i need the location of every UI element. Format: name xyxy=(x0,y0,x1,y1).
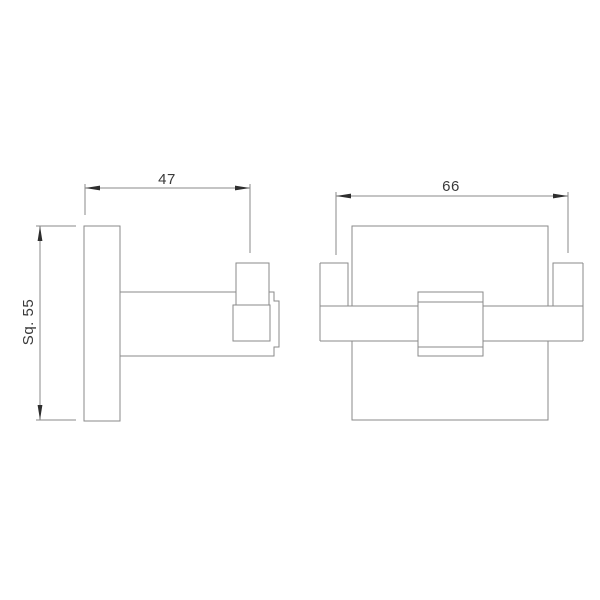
front-back-plate-upper xyxy=(352,226,548,306)
side-view xyxy=(84,226,279,421)
front-left-hook-peg xyxy=(320,263,348,306)
dim-sq55-arrow-bottom-icon xyxy=(38,405,43,420)
dim-66-arrow-left-icon xyxy=(336,194,351,199)
dim-47-arrow-right-icon xyxy=(235,186,250,191)
drawing-canvas: 47 66 Sq. 55 xyxy=(0,0,600,600)
dim-66-label: 66 xyxy=(442,178,460,195)
side-hook-face-square xyxy=(233,305,270,341)
side-wall-plate xyxy=(84,226,120,421)
front-right-hook-peg xyxy=(553,263,583,306)
technical-drawing: 47 66 Sq. 55 xyxy=(0,0,600,600)
front-view xyxy=(320,226,583,420)
dim-47-arrow-left-icon xyxy=(85,186,100,191)
side-arm-step-profile xyxy=(120,292,279,356)
side-hook-peg xyxy=(236,263,269,305)
dim-sq55-label: Sq. 55 xyxy=(20,299,37,345)
dim-66-arrow-right-icon xyxy=(553,194,568,199)
front-back-plate-lower xyxy=(352,341,548,420)
front-center-cap-bevel-lines xyxy=(418,302,483,347)
dim-47-label: 47 xyxy=(158,171,176,188)
dim-sq55-arrow-top-icon xyxy=(38,226,43,241)
